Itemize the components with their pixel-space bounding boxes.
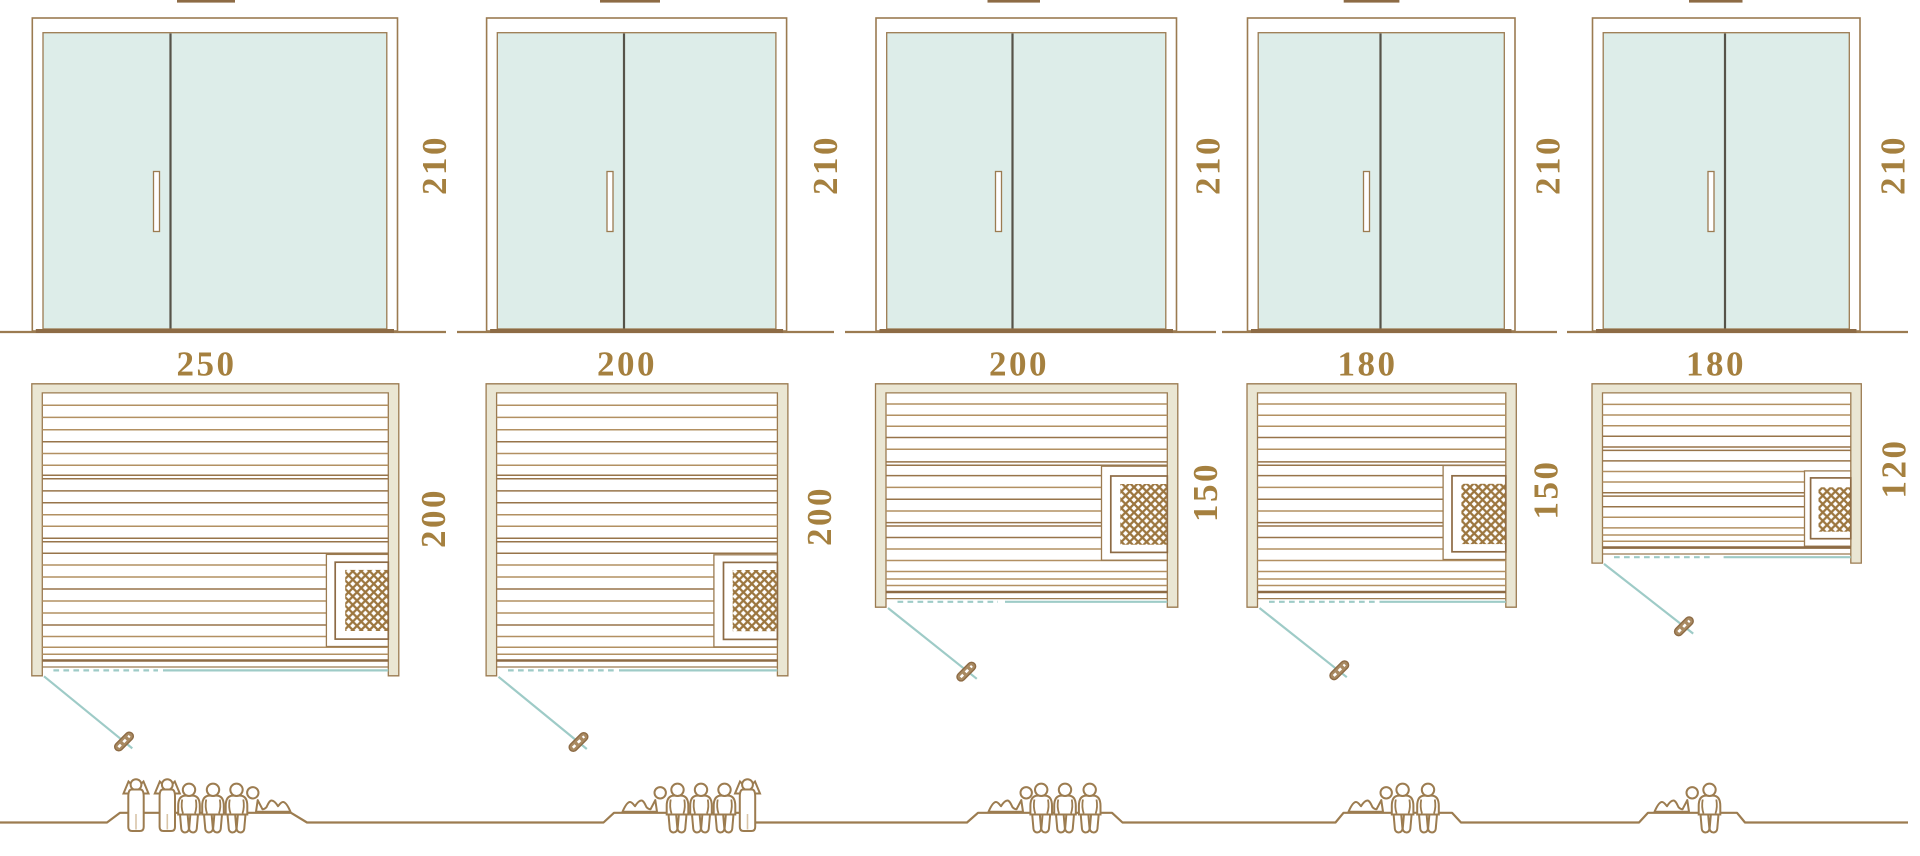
svg-text:180: 180 bbox=[1338, 345, 1398, 384]
svg-text:200: 200 bbox=[597, 345, 657, 384]
svg-text:150: 150 bbox=[1186, 462, 1225, 522]
svg-text:200: 200 bbox=[414, 488, 453, 548]
svg-text:150: 150 bbox=[1527, 460, 1566, 520]
svg-text:210: 210 bbox=[1874, 135, 1913, 195]
svg-text:120: 120 bbox=[1874, 439, 1913, 499]
svg-text:180: 180 bbox=[1686, 345, 1746, 384]
svg-text:210: 210 bbox=[415, 135, 454, 195]
svg-text:210: 210 bbox=[1189, 135, 1228, 195]
svg-text:200: 200 bbox=[989, 345, 1049, 384]
svg-text:250: 250 bbox=[177, 345, 237, 384]
svg-text:200: 200 bbox=[800, 486, 839, 546]
svg-text:210: 210 bbox=[1529, 135, 1568, 195]
svg-text:210: 210 bbox=[806, 135, 845, 195]
